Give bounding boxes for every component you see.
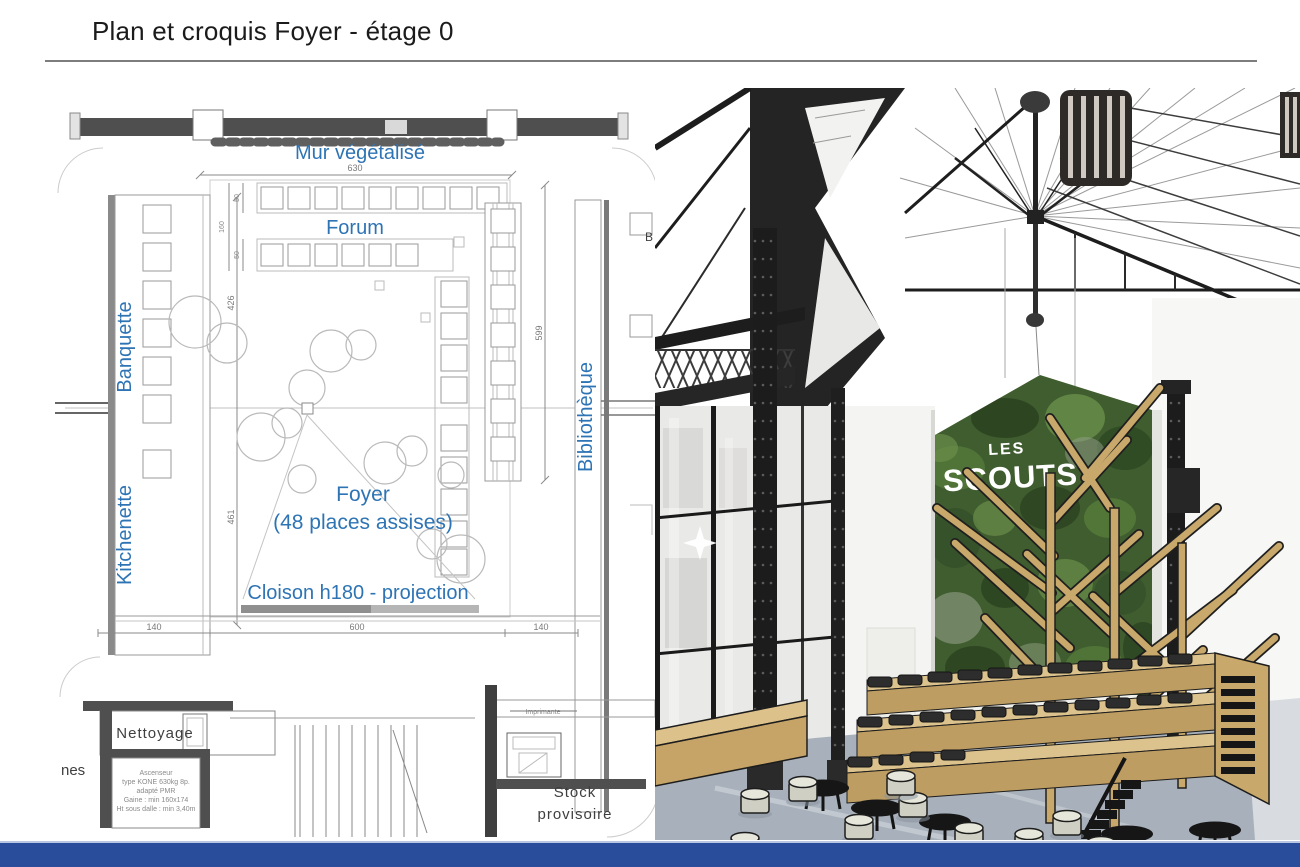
svg-text:461: 461 [226, 509, 236, 524]
svg-text:600: 600 [349, 622, 364, 632]
logo-les: LES [988, 440, 1026, 459]
door-arc-top-right [612, 148, 657, 193]
svg-text:140: 140 [533, 622, 548, 632]
interior-render-image: LES SCOUTS [655, 88, 1300, 840]
roof-grille-ornament [1060, 90, 1132, 186]
label-stock-2: provisoire [537, 806, 612, 823]
logo-scouts: SCOUTS [942, 457, 1079, 499]
dim-426: 426 [226, 193, 241, 408]
top-wall [70, 110, 628, 142]
footer-bar [0, 841, 1300, 867]
stock-room: Imprimante Stock provisoire [485, 685, 659, 837]
svg-text:426: 426 [226, 295, 236, 310]
bookshelf-strip [485, 203, 521, 481]
label-mur-vegetalise: Mur végétalisé [295, 142, 425, 164]
edge-text-fragment: nes [61, 762, 85, 779]
svg-text:type KONE 630kg 8p.: type KONE 630kg 8p. [122, 779, 190, 786]
label-bibliotheque: Bibliothèque [575, 362, 597, 472]
bibliotheque-wall [575, 200, 660, 812]
svg-text:160: 160 [219, 221, 226, 233]
floor-plan-drawing: Mur végétalisé 630 [55, 85, 660, 845]
label-foyer: Foyer [336, 483, 390, 506]
svg-text:adapté PMR: adapté PMR [137, 788, 176, 795]
label-nettoyage: Nettoyage [116, 725, 193, 742]
printer-icon [507, 733, 561, 777]
dim-630: 630 [196, 163, 516, 179]
svg-text:Gaine : min 160x174: Gaine : min 160x174 [124, 797, 189, 804]
label-forum: Forum [326, 217, 384, 239]
dim-599: 599 [534, 181, 549, 484]
label-cloison: Cloison h180 - projection [247, 582, 468, 604]
label-foyer-capacity: (48 places assises) [273, 511, 453, 534]
svg-text:Ht sous dalle : min 3,40m: Ht sous dalle : min 3,40m [117, 806, 196, 813]
page-title: Plan et croquis Foyer - étage 0 [92, 16, 454, 47]
column-bracket [1167, 468, 1200, 513]
door-arc-lower-left [60, 657, 100, 697]
svg-text:Ascenseur: Ascenseur [139, 770, 173, 777]
row-dims: 160 50 50 [219, 183, 243, 271]
door-arc-top-left [58, 148, 103, 193]
slide: Plan et croquis Foyer - étage 0 Mur végé… [0, 0, 1300, 867]
roof-corner-window [1280, 92, 1300, 158]
label-imprimante: Imprimante [525, 709, 560, 716]
dim-461: 461 [226, 408, 241, 629]
svg-text:630: 630 [347, 163, 362, 173]
plan-marker-1 [375, 281, 384, 290]
svg-text:140: 140 [146, 622, 161, 632]
svg-text:599: 599 [534, 325, 544, 340]
plan-marker-2 [421, 313, 430, 322]
title-divider [45, 60, 1257, 62]
label-stock-1: Stock [554, 784, 597, 801]
label-banquette: Banquette [114, 301, 136, 392]
label-room-b: B [645, 230, 653, 244]
foyer-circles [169, 296, 485, 583]
label-kitchenette: Kitchenette [114, 485, 136, 585]
